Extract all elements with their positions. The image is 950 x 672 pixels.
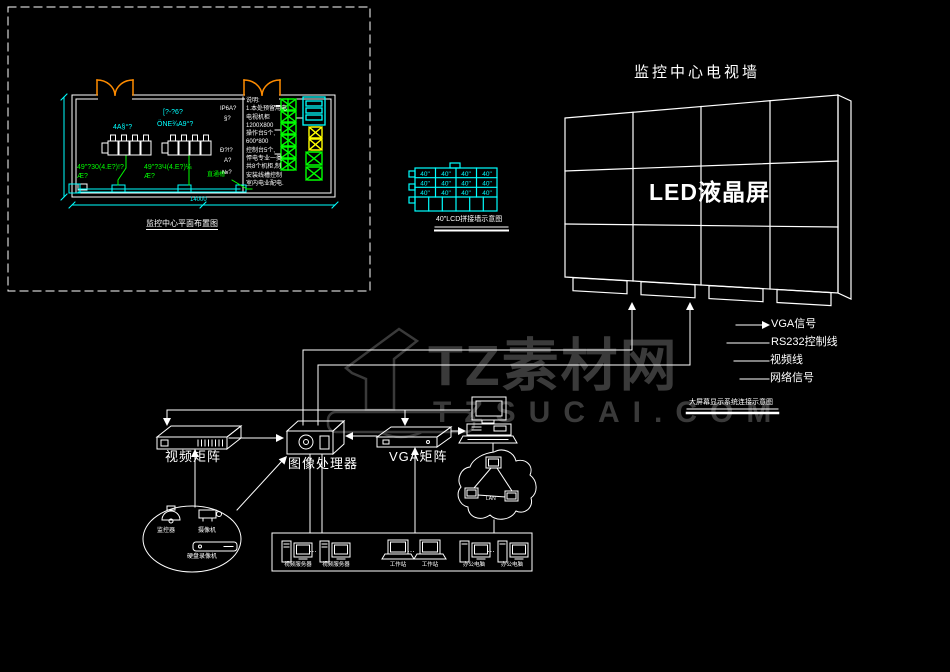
terminal-label-1: 视频服务器 [312, 563, 360, 569]
image-processor-icon [287, 421, 344, 454]
console-group-2-icon [162, 135, 211, 155]
legend-caption: 大屏幕显示系统连接示意图 [689, 399, 773, 406]
plan-dimension-text: 14000 [190, 197, 207, 203]
svg-text:40": 40" [461, 171, 471, 178]
elevation-caption: 40"LCD拼接墙示意图 [436, 216, 502, 223]
legend-item-vga: VGA信号 [771, 319, 816, 330]
svg-text:40": 40" [461, 190, 471, 197]
svg-text:40": 40" [420, 190, 430, 197]
cabinet-green-right-icon [306, 152, 322, 180]
box-camera-label: 摄像机 [198, 528, 216, 534]
legend-lines [727, 325, 769, 379]
console-group-1-icon [102, 135, 151, 155]
floor-duct-cyan [69, 184, 246, 193]
lan-cloud-icon [458, 450, 536, 519]
vga-matrix-label: VGA矩阵 [389, 450, 447, 463]
legend-item-video: 视频线 [770, 355, 803, 366]
svg-text:40": 40" [441, 181, 451, 188]
lan-label: LAN [486, 497, 496, 502]
cabinet-cyan-icon [303, 97, 325, 125]
cable-text-2b: Æ? [144, 173, 155, 180]
svg-text:40": 40" [461, 181, 471, 188]
double-door-left-icon [97, 80, 133, 95]
plan-side-note-3: A? [224, 158, 231, 164]
watermark-logo-1-icon [328, 329, 474, 437]
control-pc-icon [459, 397, 517, 443]
svg-text:40": 40" [441, 190, 451, 197]
plan-caption: 监控中心平面布置图 [146, 220, 218, 230]
terminal-separator-0: … [309, 546, 317, 554]
svg-text:40": 40" [441, 171, 451, 178]
cabinet-yellow-icon [309, 127, 322, 150]
tv-wall-title: 监控中心电视墙 [634, 65, 760, 80]
plan-side-note-2: Ð?!? [220, 148, 233, 154]
cable-text-1b: Æ? [77, 173, 88, 180]
legend-item-rs232: RS232控制线 [771, 337, 838, 348]
camera-sources-group-icon [143, 506, 241, 572]
legend-item-network: 网络信号 [770, 373, 814, 384]
cable-text-1a: 49"?30(4.E?)!? [77, 164, 124, 171]
svg-text:40": 40" [420, 171, 430, 178]
svg-text:40": 40" [482, 190, 492, 197]
connection-lines [167, 307, 690, 533]
console-label-2a: [?-?6? [163, 109, 183, 116]
plan-side-note-1: §? [224, 116, 231, 122]
console-label-2b: ÖNE¾A9°? [157, 121, 193, 128]
cad-drawing-canvas: TZ素材网 TZSUCAI.COM [0, 0, 950, 672]
svg-text:40": 40" [420, 181, 430, 188]
cable-text-2a: 49"?3Ч(4.E?)¼ [144, 164, 192, 171]
plan-side-note-0: IP6A? [220, 106, 236, 112]
elevation-caption-underline [435, 227, 508, 231]
legend-arrowhead [762, 321, 770, 329]
plan-side-note-4: №? [222, 170, 232, 176]
svg-text:40": 40" [482, 171, 492, 178]
dome-camera-label: 监控器 [157, 528, 175, 534]
legend-caption-underline [687, 409, 778, 413]
video-matrix-icon [157, 426, 241, 449]
terminal-label-3: 工作站 [410, 563, 450, 569]
video-matrix-label: 视频矩阵 [165, 450, 221, 463]
console-label-1: 4A§°? [113, 124, 132, 131]
dvr-label: 硬盘录像机 [187, 554, 217, 560]
double-door-right-icon [244, 80, 280, 95]
image-processor-label: 图像处理器 [288, 457, 358, 470]
plan-notes-column: 说明:1.本处预留用电 电视机柜1200X800 操作台5个,600*800 控… [246, 97, 287, 188]
tv-wall-label: LED液晶屏 [649, 181, 770, 204]
svg-text:40": 40" [482, 181, 492, 188]
vga-matrix-icon [377, 427, 451, 447]
terminal-label-5: 办公电脑 [488, 563, 536, 569]
terminal-separator-2: … [487, 546, 495, 554]
terminal-separator-1: … [407, 546, 415, 554]
